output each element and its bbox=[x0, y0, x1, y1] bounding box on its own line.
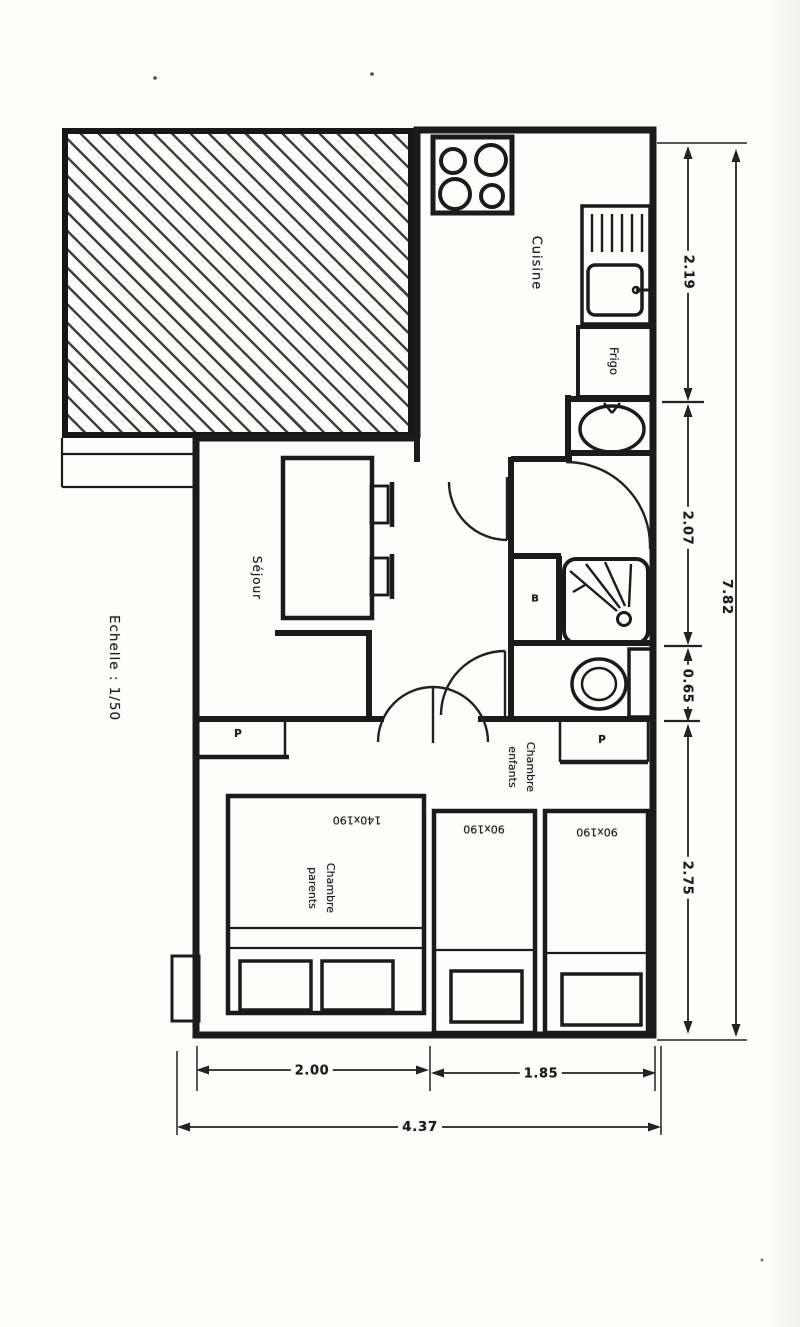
dim-width-left: 2.00 bbox=[291, 1064, 333, 1079]
drainboard-lines bbox=[592, 214, 642, 252]
bedroom-parents-line1: Chambre bbox=[321, 863, 339, 913]
bedroom-kids-label: Chambre enfants bbox=[503, 742, 539, 792]
shower-drain bbox=[618, 613, 631, 626]
dim-wc-depth: 0.65 bbox=[680, 665, 695, 707]
single-bed-1 bbox=[434, 811, 535, 1033]
double-bed-size-label: 140x190 bbox=[333, 814, 382, 827]
bedroom-kids-line1: Chambre bbox=[521, 742, 539, 792]
pillow bbox=[322, 961, 393, 1010]
single-bed-2 bbox=[545, 811, 648, 1033]
dim-total-width: 4.37 bbox=[398, 1119, 442, 1135]
entry-steps bbox=[62, 438, 194, 487]
scan-specks bbox=[153, 72, 763, 1261]
scale-note: Echelle : 1/50 bbox=[106, 615, 122, 721]
toilet-tank bbox=[629, 649, 652, 717]
shower-spray-lines bbox=[570, 562, 631, 611]
shower bbox=[564, 559, 648, 643]
stove bbox=[433, 137, 512, 213]
dimension-lines bbox=[177, 143, 747, 1135]
closet-right-label: P bbox=[598, 734, 606, 746]
double-swing-door-arc bbox=[378, 687, 488, 743]
pillow bbox=[562, 974, 641, 1025]
dining-table bbox=[283, 458, 372, 618]
single-bed-2-size-label: 90x190 bbox=[576, 826, 618, 839]
floor-plan-sheet: Cuisine Frigo Séjour Echelle : 1/50 Cham… bbox=[0, 0, 800, 1327]
bath-closet-label: B bbox=[531, 594, 539, 605]
wc-door-arc bbox=[441, 651, 505, 716]
dim-bath-depth: 2.07 bbox=[680, 507, 695, 549]
closet-left-label: P bbox=[234, 728, 242, 740]
door-arcs bbox=[378, 462, 650, 743]
kitchen-sink bbox=[582, 206, 650, 324]
bathroom-door-arc bbox=[566, 462, 650, 549]
pillow bbox=[451, 971, 522, 1022]
scan-edge-shadow bbox=[766, 0, 800, 1327]
single-bed-1-size-label: 90x190 bbox=[463, 823, 505, 836]
bedroom-parents-label: Chambre parents bbox=[303, 863, 339, 913]
bedroom-parents-line2: parents bbox=[303, 863, 321, 913]
pillow bbox=[240, 961, 311, 1010]
dim-width-right: 1.85 bbox=[520, 1067, 562, 1082]
dim-total-depth: 7.82 bbox=[719, 575, 735, 619]
living-room-label: Séjour bbox=[250, 556, 264, 600]
kitchen-label: Cuisine bbox=[529, 236, 544, 291]
bedroom-kids-line2: enfants bbox=[503, 742, 521, 792]
dim-bedroom-depth: 2.75 bbox=[680, 857, 695, 899]
fridge-label: Frigo bbox=[607, 347, 621, 375]
washbasin bbox=[580, 403, 644, 452]
dim-kitchen-depth: 2.19 bbox=[681, 251, 696, 293]
toilet bbox=[572, 649, 652, 717]
living-door-arc bbox=[449, 477, 507, 540]
